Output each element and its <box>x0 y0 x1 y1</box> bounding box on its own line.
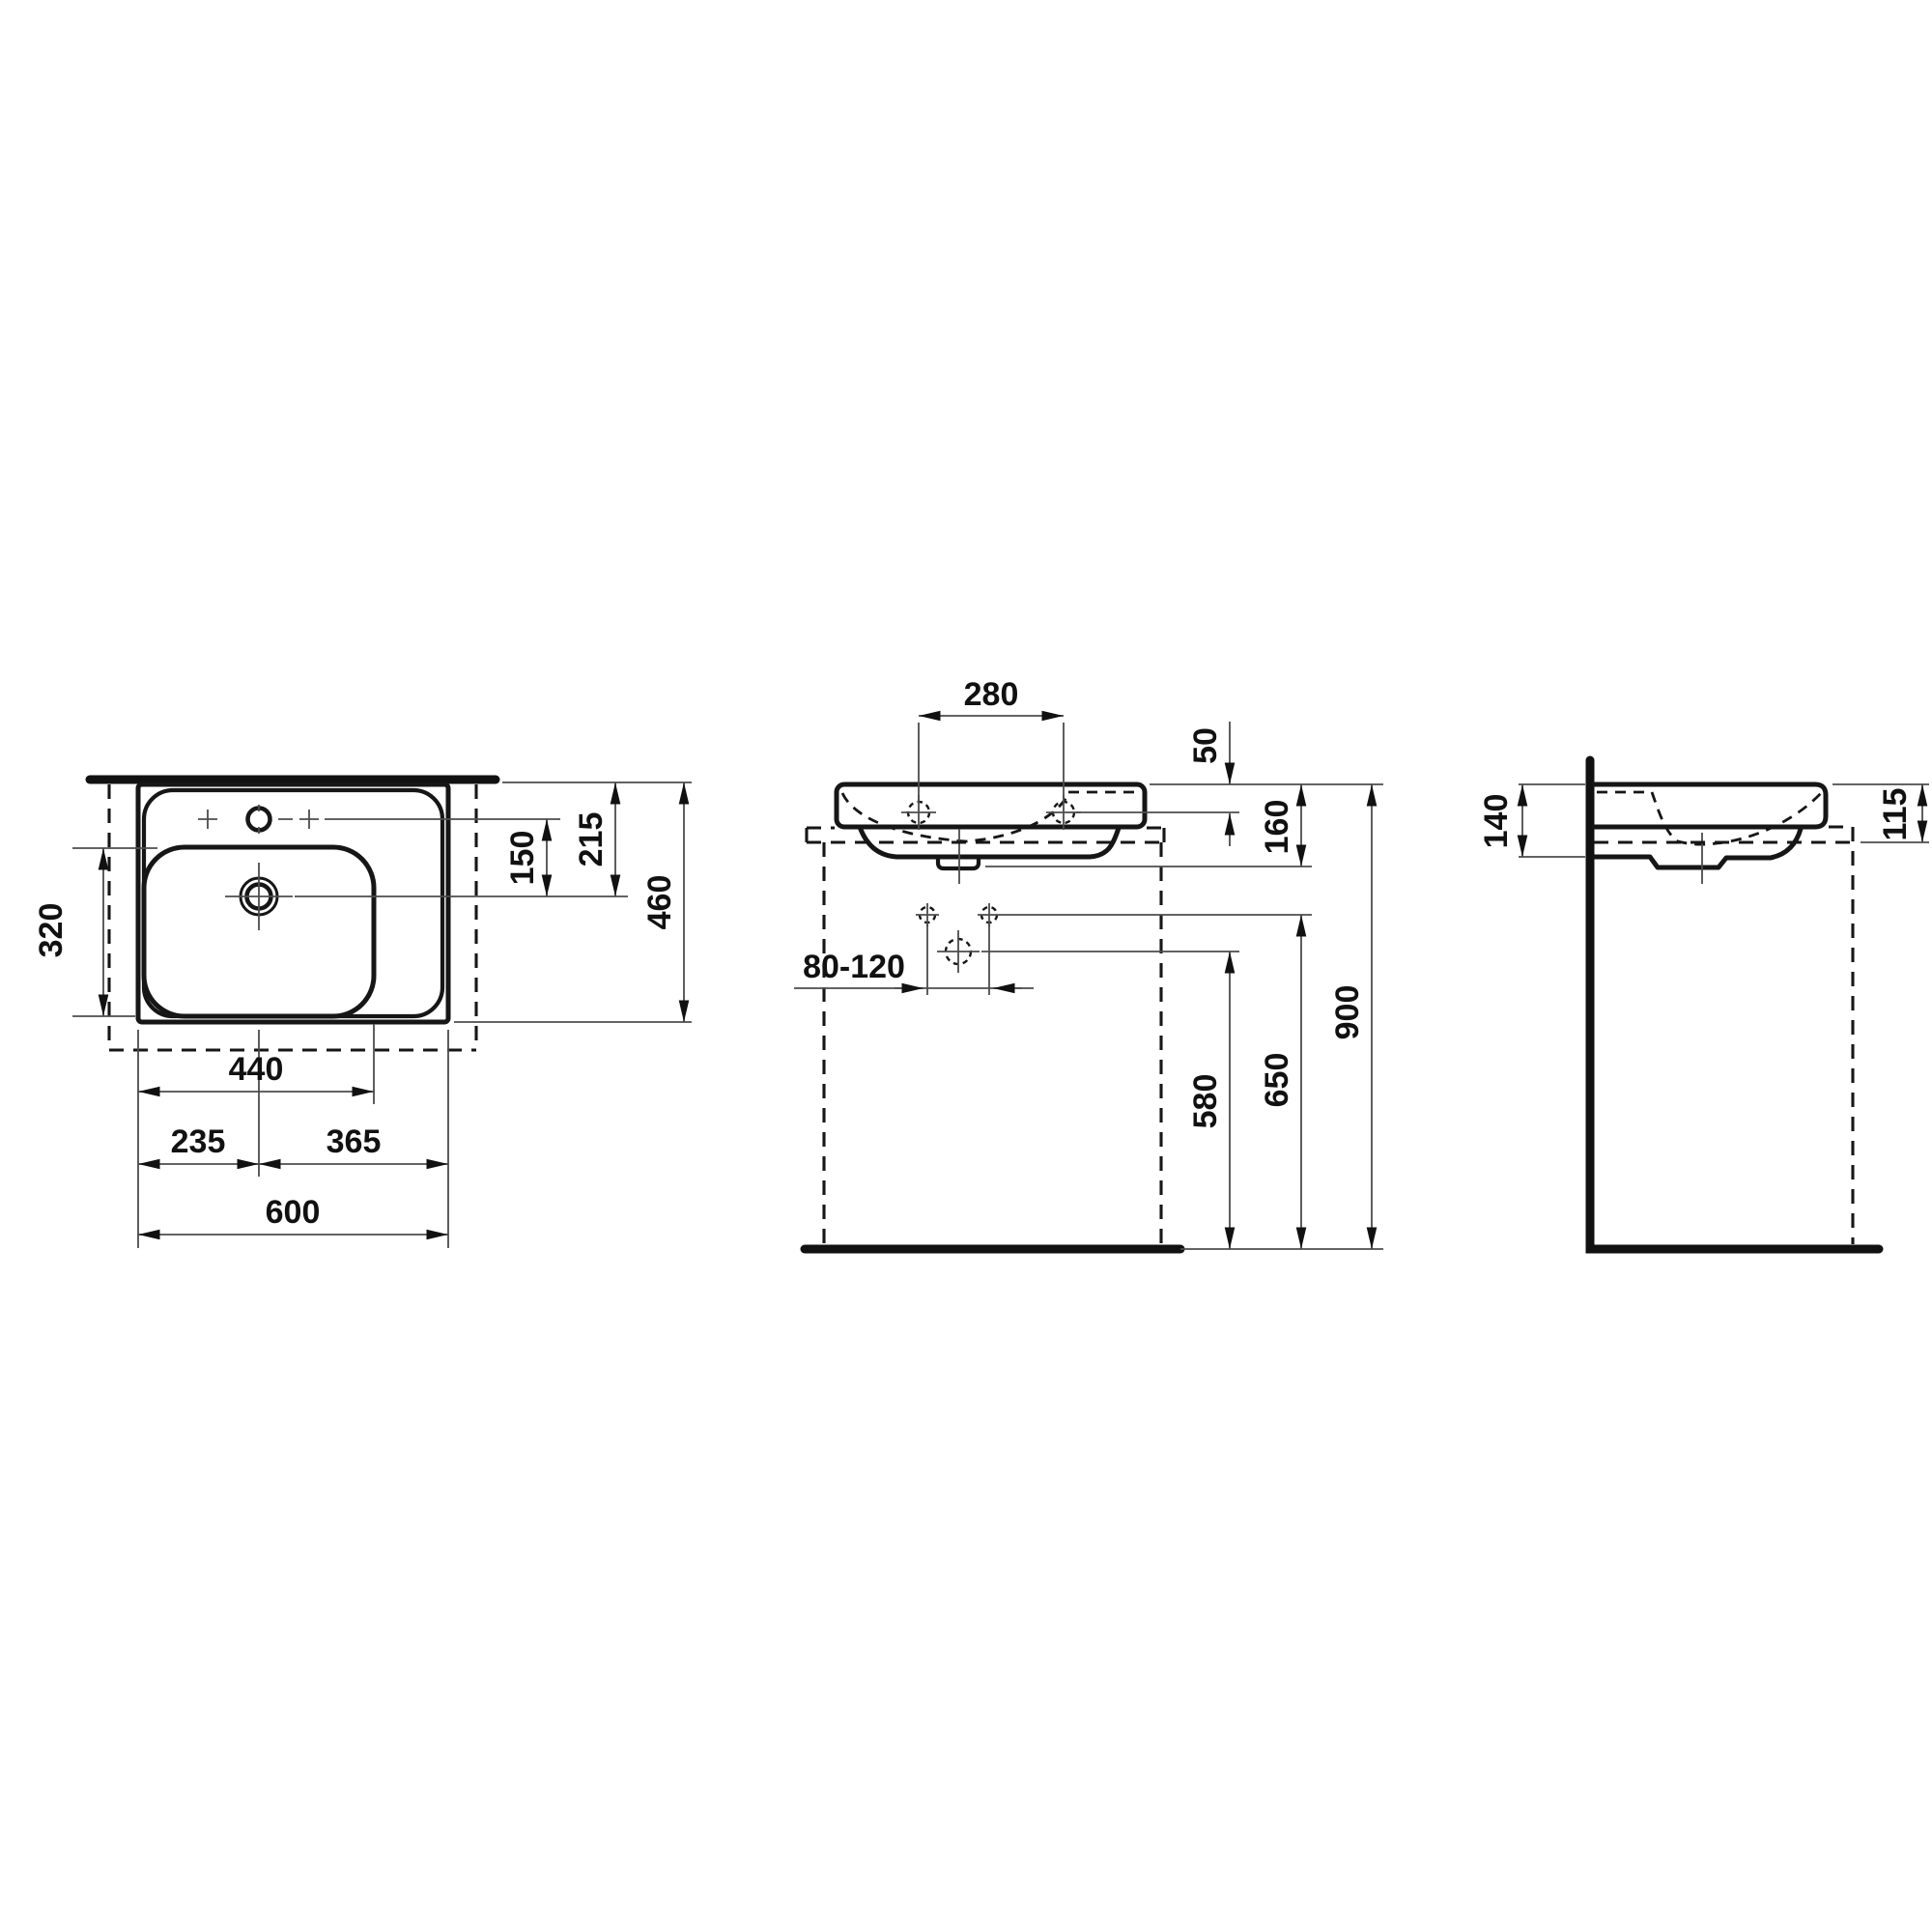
dim-580-label: 580 <box>1187 1074 1224 1129</box>
dim-900-label: 900 <box>1329 985 1366 1040</box>
page-background <box>0 0 1932 1932</box>
dim-460-label: 460 <box>641 875 678 930</box>
dim-80-120-label: 80-120 <box>803 949 905 985</box>
dim-440-label: 440 <box>229 1051 284 1088</box>
technical-drawing-page: 320 150 215 460 440 235 365 600 <box>0 0 1932 1932</box>
dim-150-label: 150 <box>504 831 541 886</box>
dim-365-label: 365 <box>327 1123 382 1160</box>
dim-320-label: 320 <box>33 903 70 958</box>
dim-600-label: 600 <box>266 1194 321 1231</box>
dim-140-label: 140 <box>1478 794 1515 849</box>
dim-160-label: 160 <box>1259 800 1295 855</box>
dim-215-label: 215 <box>573 812 610 867</box>
dim-50-label: 50 <box>1187 727 1224 764</box>
washbasin-drawing-canvas: 320 150 215 460 440 235 365 600 <box>0 0 1932 1932</box>
dim-235-label: 235 <box>171 1123 226 1160</box>
dim-650-label: 650 <box>1259 1053 1295 1108</box>
dim-115-label: 115 <box>1877 788 1914 841</box>
dim-280-label: 280 <box>964 676 1019 713</box>
